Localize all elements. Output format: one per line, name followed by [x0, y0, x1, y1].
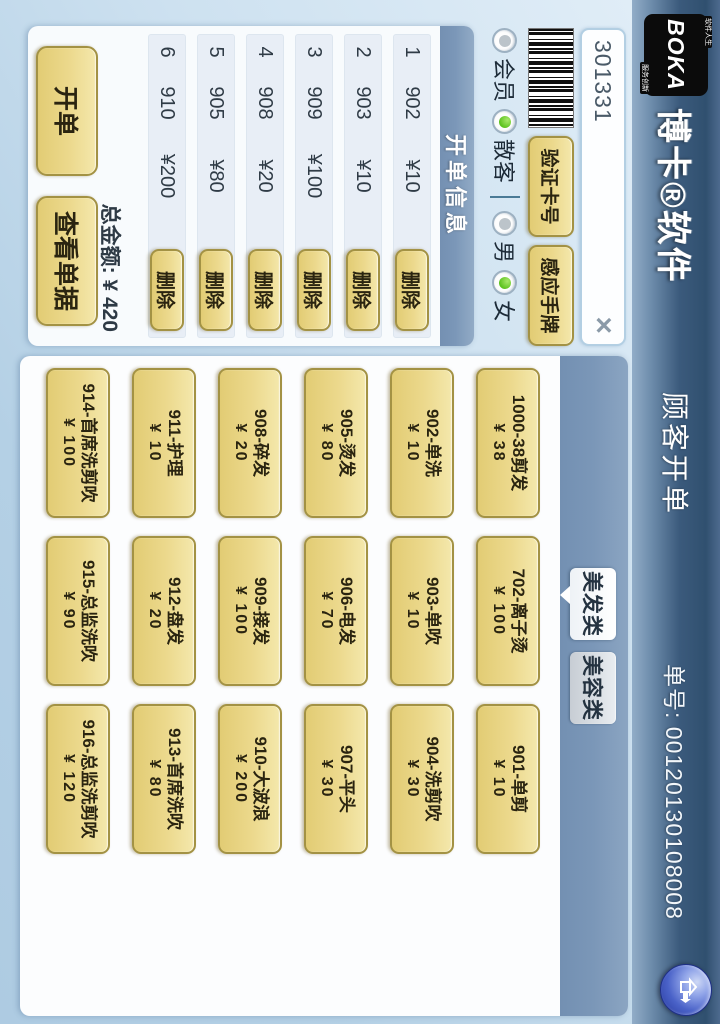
- service-button-915-总监洗吹[interactable]: 915-总监洗吹 ¥ 90: [46, 536, 110, 686]
- radio-label: 散客: [489, 139, 521, 183]
- service-name: 916-总监洗剪吹: [79, 719, 97, 838]
- clear-input-icon[interactable]: ×: [588, 316, 618, 334]
- service-grid: 1000-38剪发 ¥ 38 702-离子烫 ¥ 100 901-单剪 ¥ 10…: [24, 356, 560, 1016]
- delete-row-button[interactable]: 删除: [199, 249, 233, 331]
- service-name: 702-离子烫: [509, 568, 527, 653]
- service-button-903-单吹[interactable]: 903-单吹 ¥ 10: [390, 536, 454, 686]
- scan-row: 验证卡号 感应手牌: [528, 28, 574, 346]
- service-name: 915-总监洗吹: [79, 560, 97, 662]
- order-row-code: 905: [205, 69, 228, 137]
- service-button-914-首席洗剪吹[interactable]: 914-首席洗剪吹 ¥ 100: [46, 368, 110, 518]
- service-price: ¥ 90: [59, 591, 76, 630]
- order-number: 单号: 00120130108008: [659, 664, 693, 920]
- service-price: ¥ 200: [231, 754, 248, 804]
- order-row-code: 910: [156, 69, 179, 137]
- service-price: ¥ 10: [489, 759, 506, 798]
- order-row-code: 902: [401, 69, 424, 137]
- logo-text: BOKA: [663, 19, 690, 91]
- total-amount: 总金额: ¥ 420: [96, 204, 126, 332]
- category-tab-strip: 美发类美容类: [560, 356, 628, 1016]
- delete-row-button[interactable]: 删除: [150, 249, 184, 331]
- service-button-911-护理[interactable]: 911-护理 ¥ 10: [132, 368, 196, 518]
- service-button-907-平头[interactable]: 907-平头 ¥ 30: [304, 704, 368, 854]
- radio-circle-icon: [493, 28, 518, 53]
- page-title: 顾客开单: [656, 392, 696, 516]
- order-row-code: 909: [303, 69, 326, 137]
- card-number-input[interactable]: 301331 ×: [580, 28, 626, 346]
- service-price: ¥ 30: [403, 759, 420, 798]
- service-price: ¥ 100: [489, 586, 506, 636]
- radio-circle-icon: [493, 211, 518, 236]
- service-price: ¥ 80: [145, 759, 162, 798]
- service-name: 912-盘发: [165, 577, 183, 645]
- service-name: 1000-38剪发: [509, 395, 527, 491]
- service-price: ¥ 70: [317, 591, 334, 630]
- service-name: 908-碎发: [251, 409, 269, 477]
- sense-tag-button[interactable]: 感应手牌: [528, 245, 574, 346]
- service-button-904-洗剪吹[interactable]: 904-洗剪吹 ¥ 30: [390, 704, 454, 854]
- order-row-code: 903: [352, 69, 375, 137]
- order-row: 1 902 ¥10 删除: [393, 34, 431, 338]
- home-exit-button[interactable]: [660, 964, 712, 1016]
- radio-option-男[interactable]: 男: [489, 211, 521, 263]
- order-row-price: ¥100: [303, 137, 326, 215]
- open-order-button[interactable]: 开单: [36, 46, 98, 176]
- service-name: 910-大波浪: [251, 736, 269, 821]
- brand-title: 博卡®软件: [651, 108, 702, 284]
- app-header: 软件人生 BOKA 服务创新 博卡®软件 顾客开单 单号: 0012013010…: [632, 0, 720, 1024]
- customer-type-gender-radios: 会员 散客 男 女: [488, 28, 522, 346]
- service-name: 909-接发: [251, 577, 269, 645]
- service-price: ¥ 10: [403, 591, 420, 630]
- barcode-image: [528, 28, 574, 128]
- services-panel: 美发类美容类 1000-38剪发 ¥ 38 702-离子烫 ¥ 100 901-…: [20, 356, 628, 1016]
- delete-row-button[interactable]: 删除: [346, 249, 380, 331]
- verify-card-button[interactable]: 验证卡号: [528, 136, 574, 237]
- order-row-price: ¥10: [401, 137, 424, 215]
- service-grid-row: 911-护理 ¥ 10 912-盘发 ¥ 20 913-首席洗吹 ¥ 80: [132, 368, 196, 1004]
- service-button-702-离子烫[interactable]: 702-离子烫 ¥ 100: [476, 536, 540, 686]
- delete-row-button[interactable]: 删除: [297, 249, 331, 331]
- service-button-905-烫发[interactable]: 905-烫发 ¥ 80: [304, 368, 368, 518]
- order-row: 4 908 ¥20 删除: [246, 34, 284, 338]
- radio-circle-icon: [493, 270, 518, 295]
- order-info-panel: 开单信息 1 902 ¥10 删除 2 903 ¥10 删除 3 909 ¥10…: [28, 26, 474, 346]
- service-price: ¥ 38: [489, 423, 506, 462]
- service-grid-row: 1000-38剪发 ¥ 38 702-离子烫 ¥ 100 901-单剪 ¥ 10: [476, 368, 540, 1004]
- service-name: 905-烫发: [337, 409, 355, 477]
- service-button-912-盘发[interactable]: 912-盘发 ¥ 20: [132, 536, 196, 686]
- radio-label: 男: [489, 241, 521, 263]
- category-tab-美容类[interactable]: 美容类: [570, 652, 616, 724]
- service-price: ¥ 100: [231, 586, 248, 636]
- order-row-index: 2: [352, 35, 375, 69]
- service-grid-row: 902-单洗 ¥ 10 903-单吹 ¥ 10 904-洗剪吹 ¥ 30: [390, 368, 454, 1004]
- order-row: 3 909 ¥100 删除: [295, 34, 333, 338]
- radio-option-会员[interactable]: 会员: [489, 28, 521, 102]
- service-grid-row: 905-烫发 ¥ 80 906-电发 ¥ 70 907-平头 ¥ 30: [304, 368, 368, 1004]
- order-row-index: 5: [205, 35, 228, 69]
- order-row-index: 4: [254, 35, 277, 69]
- active-tab-pointer-icon: [560, 586, 570, 604]
- delete-row-button[interactable]: 删除: [395, 249, 429, 331]
- service-price: ¥ 10: [145, 423, 162, 462]
- home-exit-icon: [670, 976, 703, 1004]
- radio-circle-icon: [493, 109, 518, 134]
- category-tab-美发类[interactable]: 美发类: [570, 568, 616, 640]
- order-row-price: ¥20: [254, 137, 277, 215]
- service-price: ¥ 20: [231, 423, 248, 462]
- service-name: 911-护理: [165, 409, 183, 476]
- service-price: ¥ 30: [317, 759, 334, 798]
- service-button-902-单洗[interactable]: 902-单洗 ¥ 10: [390, 368, 454, 518]
- order-row: 2 903 ¥10 删除: [344, 34, 382, 338]
- order-row: 5 905 ¥80 删除: [197, 34, 235, 338]
- order-row-code: 908: [254, 69, 277, 137]
- service-button-906-电发[interactable]: 906-电发 ¥ 70: [304, 536, 368, 686]
- order-row-index: 1: [401, 35, 424, 69]
- service-name: 904-洗剪吹: [423, 736, 441, 821]
- service-price: ¥ 10: [403, 423, 420, 462]
- logo-tagline-bottom: 服务创新: [640, 62, 649, 94]
- order-row-price: ¥10: [352, 137, 375, 215]
- content-area: 301331 × 验证卡号 感应手牌 会员 散客 男 女: [0, 0, 632, 1024]
- app-rotated-canvas: 软件人生 BOKA 服务创新 博卡®软件 顾客开单 单号: 0012013010…: [0, 0, 720, 1024]
- service-price: ¥ 120: [59, 754, 76, 804]
- service-name: 913-首席洗吹: [165, 728, 183, 830]
- screen: 软件人生 BOKA 服务创新 博卡®软件 顾客开单 单号: 0012013010…: [0, 0, 720, 1024]
- service-button-908-碎发[interactable]: 908-碎发 ¥ 20: [218, 368, 282, 518]
- service-button-901-单剪[interactable]: 901-单剪 ¥ 10: [476, 704, 540, 854]
- service-price: ¥ 20: [145, 591, 162, 630]
- service-name: 907-平头: [337, 745, 355, 813]
- radio-label: 女: [489, 300, 521, 322]
- order-info-header: 开单信息: [440, 26, 474, 346]
- boka-logo: 软件人生 BOKA 服务创新: [644, 14, 708, 96]
- order-row-index: 6: [156, 35, 179, 69]
- service-button-909-接发[interactable]: 909-接发 ¥ 100: [218, 536, 282, 686]
- service-price: ¥ 80: [317, 423, 334, 462]
- view-receipts-button[interactable]: 查看单据: [36, 196, 98, 326]
- card-number-value: 301331: [590, 40, 617, 316]
- radio-option-散客[interactable]: 散客: [489, 109, 521, 183]
- order-row: 6 910 ¥200 删除: [148, 34, 186, 338]
- order-row-price: ¥80: [205, 137, 228, 215]
- service-name: 914-首席洗剪吹: [79, 383, 97, 502]
- service-name: 903-单吹: [423, 577, 441, 645]
- radio-label: 会员: [489, 58, 521, 102]
- service-name: 902-单洗: [423, 409, 441, 477]
- order-row-index: 3: [303, 35, 326, 69]
- service-grid-row: 914-首席洗剪吹 ¥ 100 915-总监洗吹 ¥ 90 916-总监洗剪吹 …: [46, 368, 110, 1004]
- service-grid-row: 908-碎发 ¥ 20 909-接发 ¥ 100 910-大波浪 ¥ 200: [218, 368, 282, 1004]
- radio-group-divider: [490, 196, 520, 198]
- service-button-916-总监洗剪吹[interactable]: 916-总监洗剪吹 ¥ 120: [46, 704, 110, 854]
- service-button-913-首席洗吹[interactable]: 913-首席洗吹 ¥ 80: [132, 704, 196, 854]
- order-actions: 开单 查看单据: [34, 26, 100, 346]
- order-items-list: 1 902 ¥10 删除 2 903 ¥10 删除 3 909 ¥100 删除 …: [148, 26, 440, 346]
- service-name: 906-电发: [337, 577, 355, 645]
- order-row-price: ¥200: [156, 137, 179, 215]
- service-button-910-大波浪[interactable]: 910-大波浪 ¥ 200: [218, 704, 282, 854]
- service-price: ¥ 100: [59, 418, 76, 468]
- logo-tagline-top: 软件人生: [703, 16, 712, 48]
- service-button-1000-38剪发[interactable]: 1000-38剪发 ¥ 38: [476, 368, 540, 518]
- radio-option-女[interactable]: 女: [489, 270, 521, 322]
- delete-row-button[interactable]: 删除: [248, 249, 282, 331]
- service-name: 901-单剪: [509, 745, 527, 813]
